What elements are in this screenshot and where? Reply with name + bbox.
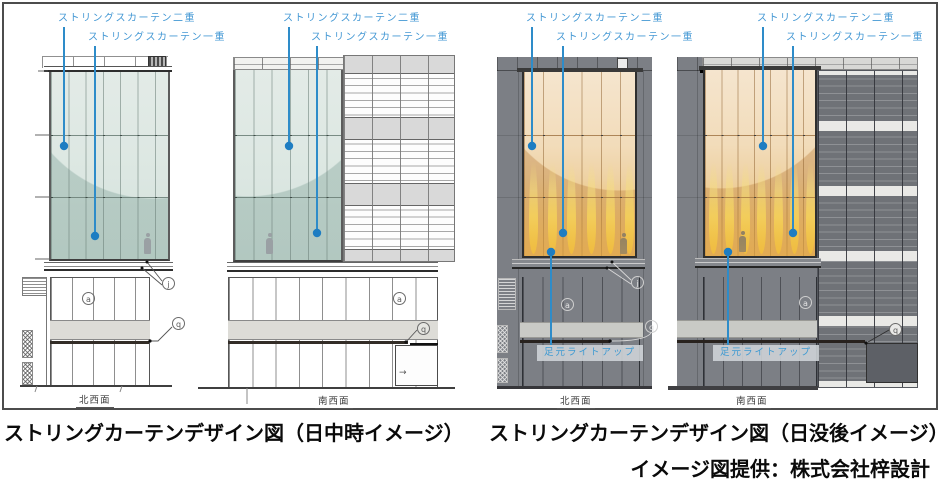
view-label-day-nw: 北西面 (76, 392, 114, 408)
floor-line (235, 135, 341, 136)
floor-line (524, 135, 635, 136)
day-sw-band (228, 320, 438, 340)
floor-line (705, 197, 815, 198)
day-nw-curtain (49, 72, 170, 261)
night-sw-curtain (703, 70, 817, 258)
night-nw-louver-detail (498, 278, 516, 310)
person-silhouette (620, 238, 627, 254)
floor-line (705, 135, 815, 136)
night-nw-band (520, 322, 643, 338)
mullion-grid (235, 70, 341, 260)
foot-lightup-label: 足元ライトアップ (713, 345, 819, 361)
marker-a: a (799, 296, 812, 309)
floor-line (51, 135, 168, 136)
marker-a: a (82, 292, 95, 305)
annotation-curtain-double: ストリングスカーテン二重 (283, 13, 421, 25)
day-nw-side-line (46, 277, 47, 386)
day-sw-ground (198, 387, 455, 389)
day-sw-adjacent-facade (343, 55, 455, 262)
night-sw-slab (695, 258, 821, 268)
day-nw-dark-fascia (50, 341, 149, 344)
marker-a: a (393, 292, 406, 305)
day-sw-storefront (395, 345, 438, 386)
floor-line (524, 197, 635, 198)
marker-j: j (631, 276, 644, 289)
view-label-day-sw: 南西面 (315, 393, 353, 409)
annotation-curtain-double: ストリングスカーテン二重 (757, 13, 895, 25)
caption-day: ストリングカーテンデザイン図（日中時イメージ） (4, 417, 464, 446)
day-sw-curtain (233, 70, 343, 262)
day-nw-hatch-detail (22, 362, 33, 385)
night-nw-ground (497, 386, 652, 389)
surround-grid-line (643, 71, 644, 388)
day-sw-dark-fascia (228, 341, 408, 344)
view-label-night-sw: 南西面 (733, 393, 771, 409)
day-nw-hatch-detail (22, 330, 33, 358)
annotation-curtain-single: ストリングスカーテン一重 (556, 32, 694, 44)
annotation-curtain-single: ストリングスカーテン一重 (786, 32, 924, 44)
door-arrow: → (399, 368, 407, 378)
marker-q: q (417, 322, 430, 335)
annotation-curtain-single: ストリングスカーテン一重 (88, 32, 226, 44)
annotation-curtain-double: ストリングスカーテン二重 (526, 13, 664, 25)
mullion-grid (705, 70, 815, 256)
person-silhouette (144, 238, 151, 254)
mullion-grid (524, 72, 635, 256)
floor-line (235, 197, 341, 198)
surround-grid-line (518, 71, 519, 388)
night-nw-hatch-detail (497, 358, 508, 383)
marker-a: a (561, 298, 574, 311)
mullion-grid (51, 72, 168, 259)
marker-q: q (889, 323, 902, 336)
annotation-curtain-double: ストリングスカーテン二重 (58, 13, 196, 25)
foot-lightup-label: 足元ライトアップ (537, 345, 643, 361)
night-nw-curtain (522, 72, 637, 258)
night-sw-dark-fascia (677, 340, 865, 343)
day-nw-ground (20, 385, 172, 387)
floor-line (51, 197, 168, 198)
night-nw-dark-fascia (520, 340, 610, 343)
marker-q: q (172, 317, 185, 330)
marker-q: q (645, 320, 658, 333)
night-sw-storefront (866, 343, 918, 383)
night-nw-slab (512, 259, 645, 269)
night-nw-hatch-detail (497, 325, 508, 353)
caption-night: ストリングカーテンデザイン図（日没後イメージ） (489, 417, 940, 446)
day-nw-band (50, 320, 150, 340)
person-silhouette (739, 236, 746, 252)
person-silhouette (266, 238, 273, 254)
annotation-curtain-single: ストリングスカーテン一重 (311, 32, 449, 44)
night-sw-ground (668, 386, 818, 390)
caption-credit: イメージ図提供：株式会社梓設計 (630, 453, 930, 482)
view-label-night-nw: 北西面 (557, 393, 595, 409)
day-nw-louver-detail (22, 277, 47, 296)
marker-j: j (162, 277, 175, 290)
night-sw-band (677, 320, 817, 338)
day-sw-slab (227, 262, 438, 272)
day-nw-slab (44, 262, 173, 271)
figure-page: j a q 北西面 → a q 南西面 (0, 0, 940, 494)
